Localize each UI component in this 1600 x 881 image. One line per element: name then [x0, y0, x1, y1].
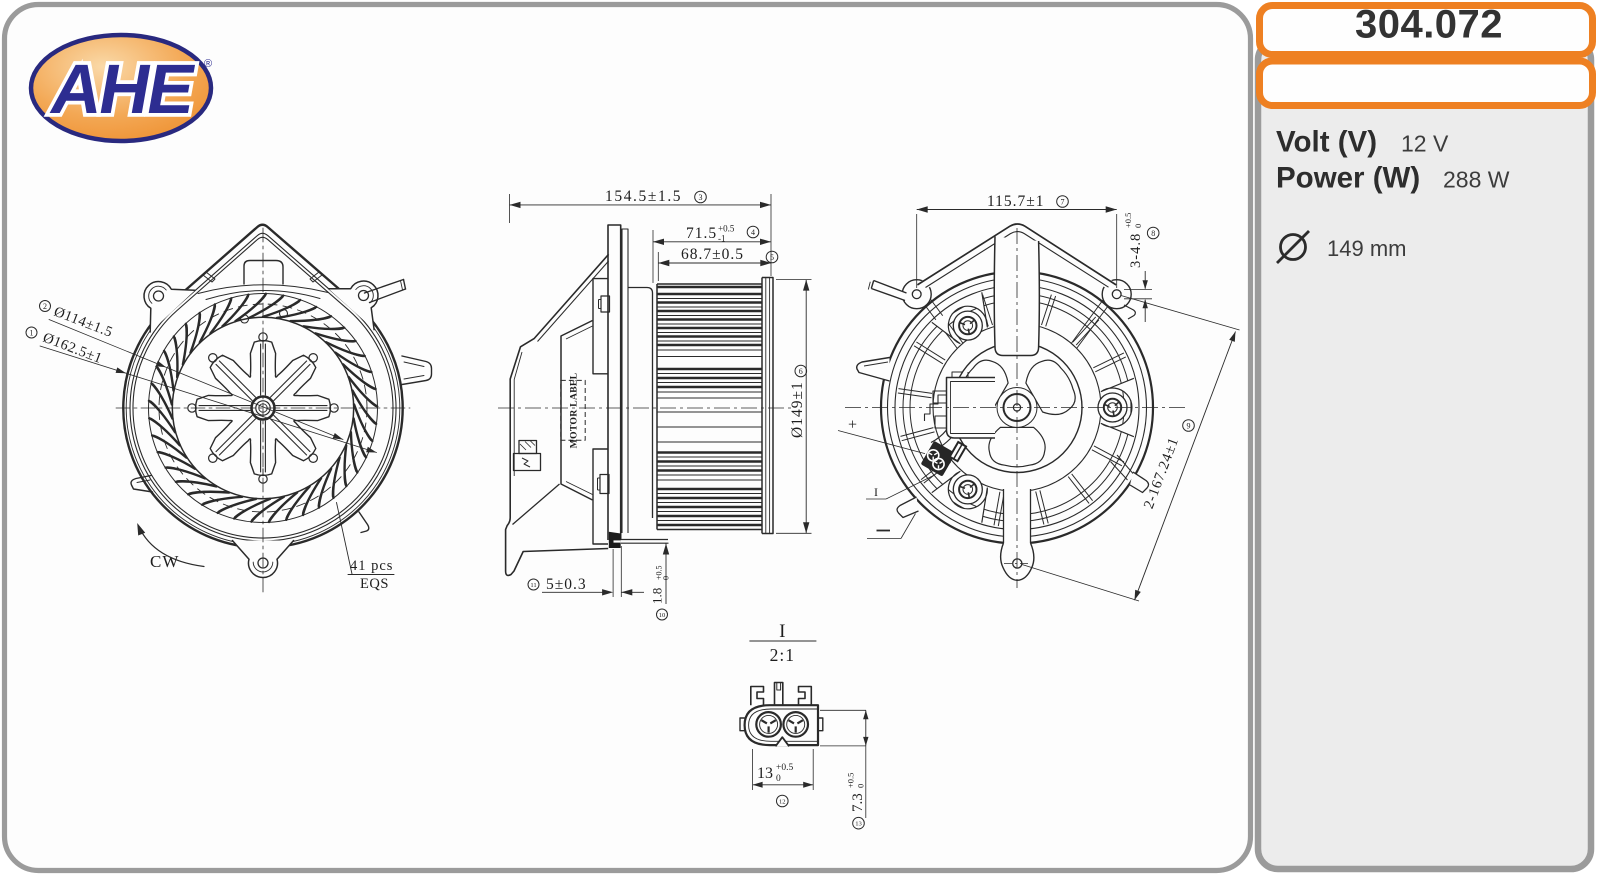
svg-text:+0.5: +0.5	[1123, 213, 1133, 228]
svg-text:13: 13	[757, 765, 773, 782]
svg-text:7: 7	[1061, 197, 1065, 206]
svg-text:0: 0	[856, 784, 866, 788]
svg-text:5: 5	[770, 253, 774, 262]
svg-text:11: 11	[530, 582, 536, 589]
svg-text:41 pcs: 41 pcs	[350, 558, 393, 574]
svg-text:304.072: 304.072	[1355, 3, 1503, 47]
svg-text:0: 0	[1133, 224, 1143, 228]
svg-text:I: I	[874, 485, 878, 499]
svg-text:-1: -1	[718, 234, 726, 244]
svg-text:154.5±1.5: 154.5±1.5	[605, 188, 682, 205]
svg-text:7.3: 7.3	[850, 793, 866, 812]
svg-text:149 mm: 149 mm	[1327, 236, 1406, 261]
svg-text:EQS: EQS	[360, 576, 389, 592]
svg-text:5±0.3: 5±0.3	[546, 576, 587, 593]
svg-text:Volt (V): Volt (V)	[1276, 126, 1377, 159]
svg-text:13: 13	[855, 821, 862, 828]
svg-text:9: 9	[1187, 421, 1191, 430]
svg-text:+0.5: +0.5	[846, 773, 856, 788]
svg-text:3: 3	[699, 193, 703, 202]
svg-text:3-4.8: 3-4.8	[1128, 233, 1144, 268]
svg-text:4: 4	[751, 228, 755, 237]
svg-text:+0.5: +0.5	[718, 224, 735, 234]
svg-text:10: 10	[659, 612, 666, 619]
svg-text:288 W: 288 W	[1443, 167, 1510, 193]
svg-text:2: 2	[43, 302, 47, 311]
svg-text:2:1: 2:1	[770, 645, 795, 665]
svg-text:1: 1	[30, 328, 34, 337]
svg-text:1.8: 1.8	[650, 588, 665, 604]
svg-text:12: 12	[779, 798, 786, 805]
svg-text:0: 0	[776, 774, 781, 784]
svg-text:MOTOR LABEL: MOTOR LABEL	[569, 372, 580, 448]
svg-text:0: 0	[662, 576, 671, 580]
svg-text:8: 8	[1151, 229, 1155, 238]
svg-text:I: I	[779, 621, 785, 642]
svg-text:115.7±1: 115.7±1	[987, 193, 1045, 210]
svg-text:+: +	[848, 417, 857, 434]
svg-text:68.7±0.5: 68.7±0.5	[681, 246, 744, 263]
svg-text:12 V: 12 V	[1401, 131, 1449, 157]
svg-text:+0.5: +0.5	[776, 763, 793, 773]
svg-text:71.5: 71.5	[686, 225, 717, 242]
svg-text:Ø149±1: Ø149±1	[789, 381, 806, 438]
svg-text:6: 6	[799, 367, 803, 376]
svg-text:CW: CW	[150, 552, 179, 571]
svg-text:®: ®	[204, 58, 212, 70]
svg-text:Power (W): Power (W)	[1276, 162, 1420, 195]
svg-text:AHE: AHE	[45, 49, 200, 127]
